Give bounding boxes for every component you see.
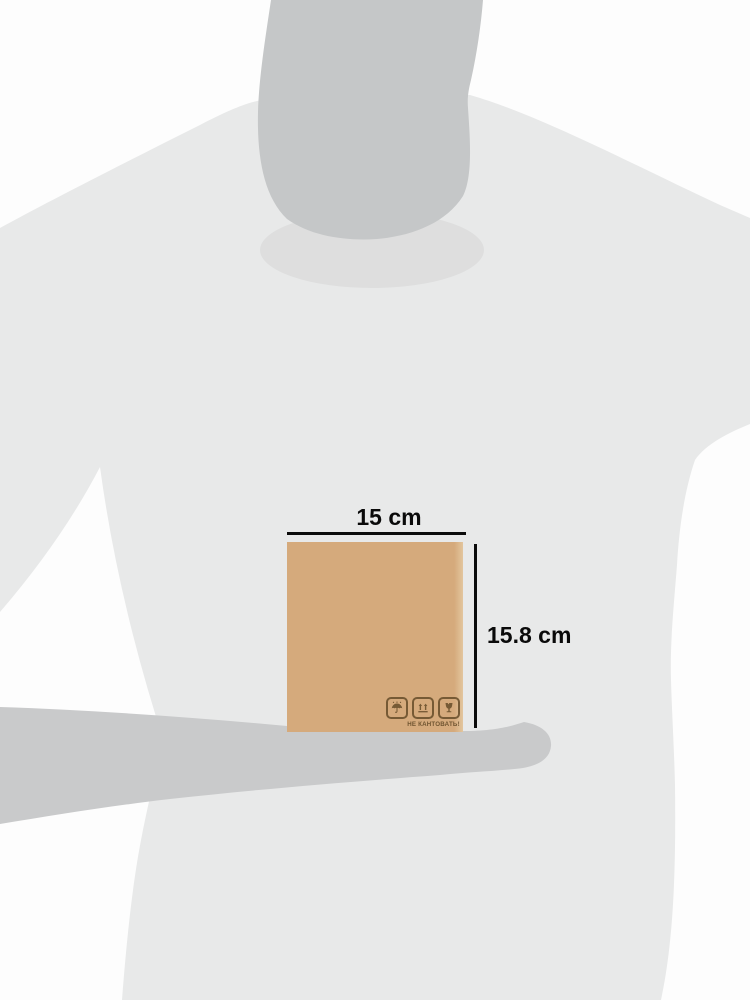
width-dimension-label: 15 cm [356,504,421,530]
shipping-icons-row [386,697,460,719]
keep-dry-umbrella-icon [386,697,408,719]
shipping-marks: НЕ КАНТОВАТЬ! [375,697,460,730]
product-size-illustration: НЕ КАНТОВАТЬ! 15 cm 15.8 cm [0,0,750,1000]
box-caption-text: НЕ КАНТОВАТЬ! [407,722,460,728]
fragile-glass-icon [438,697,460,719]
cardboard-box: НЕ КАНТОВАТЬ! [287,542,463,732]
height-dimension-label: 15.8 cm [487,622,571,648]
height-dimension-line [474,544,477,728]
width-dimension-line [287,532,466,535]
this-way-up-icon [412,697,434,719]
person-neck-silhouette [258,0,483,239]
person-silhouette [0,0,750,1000]
